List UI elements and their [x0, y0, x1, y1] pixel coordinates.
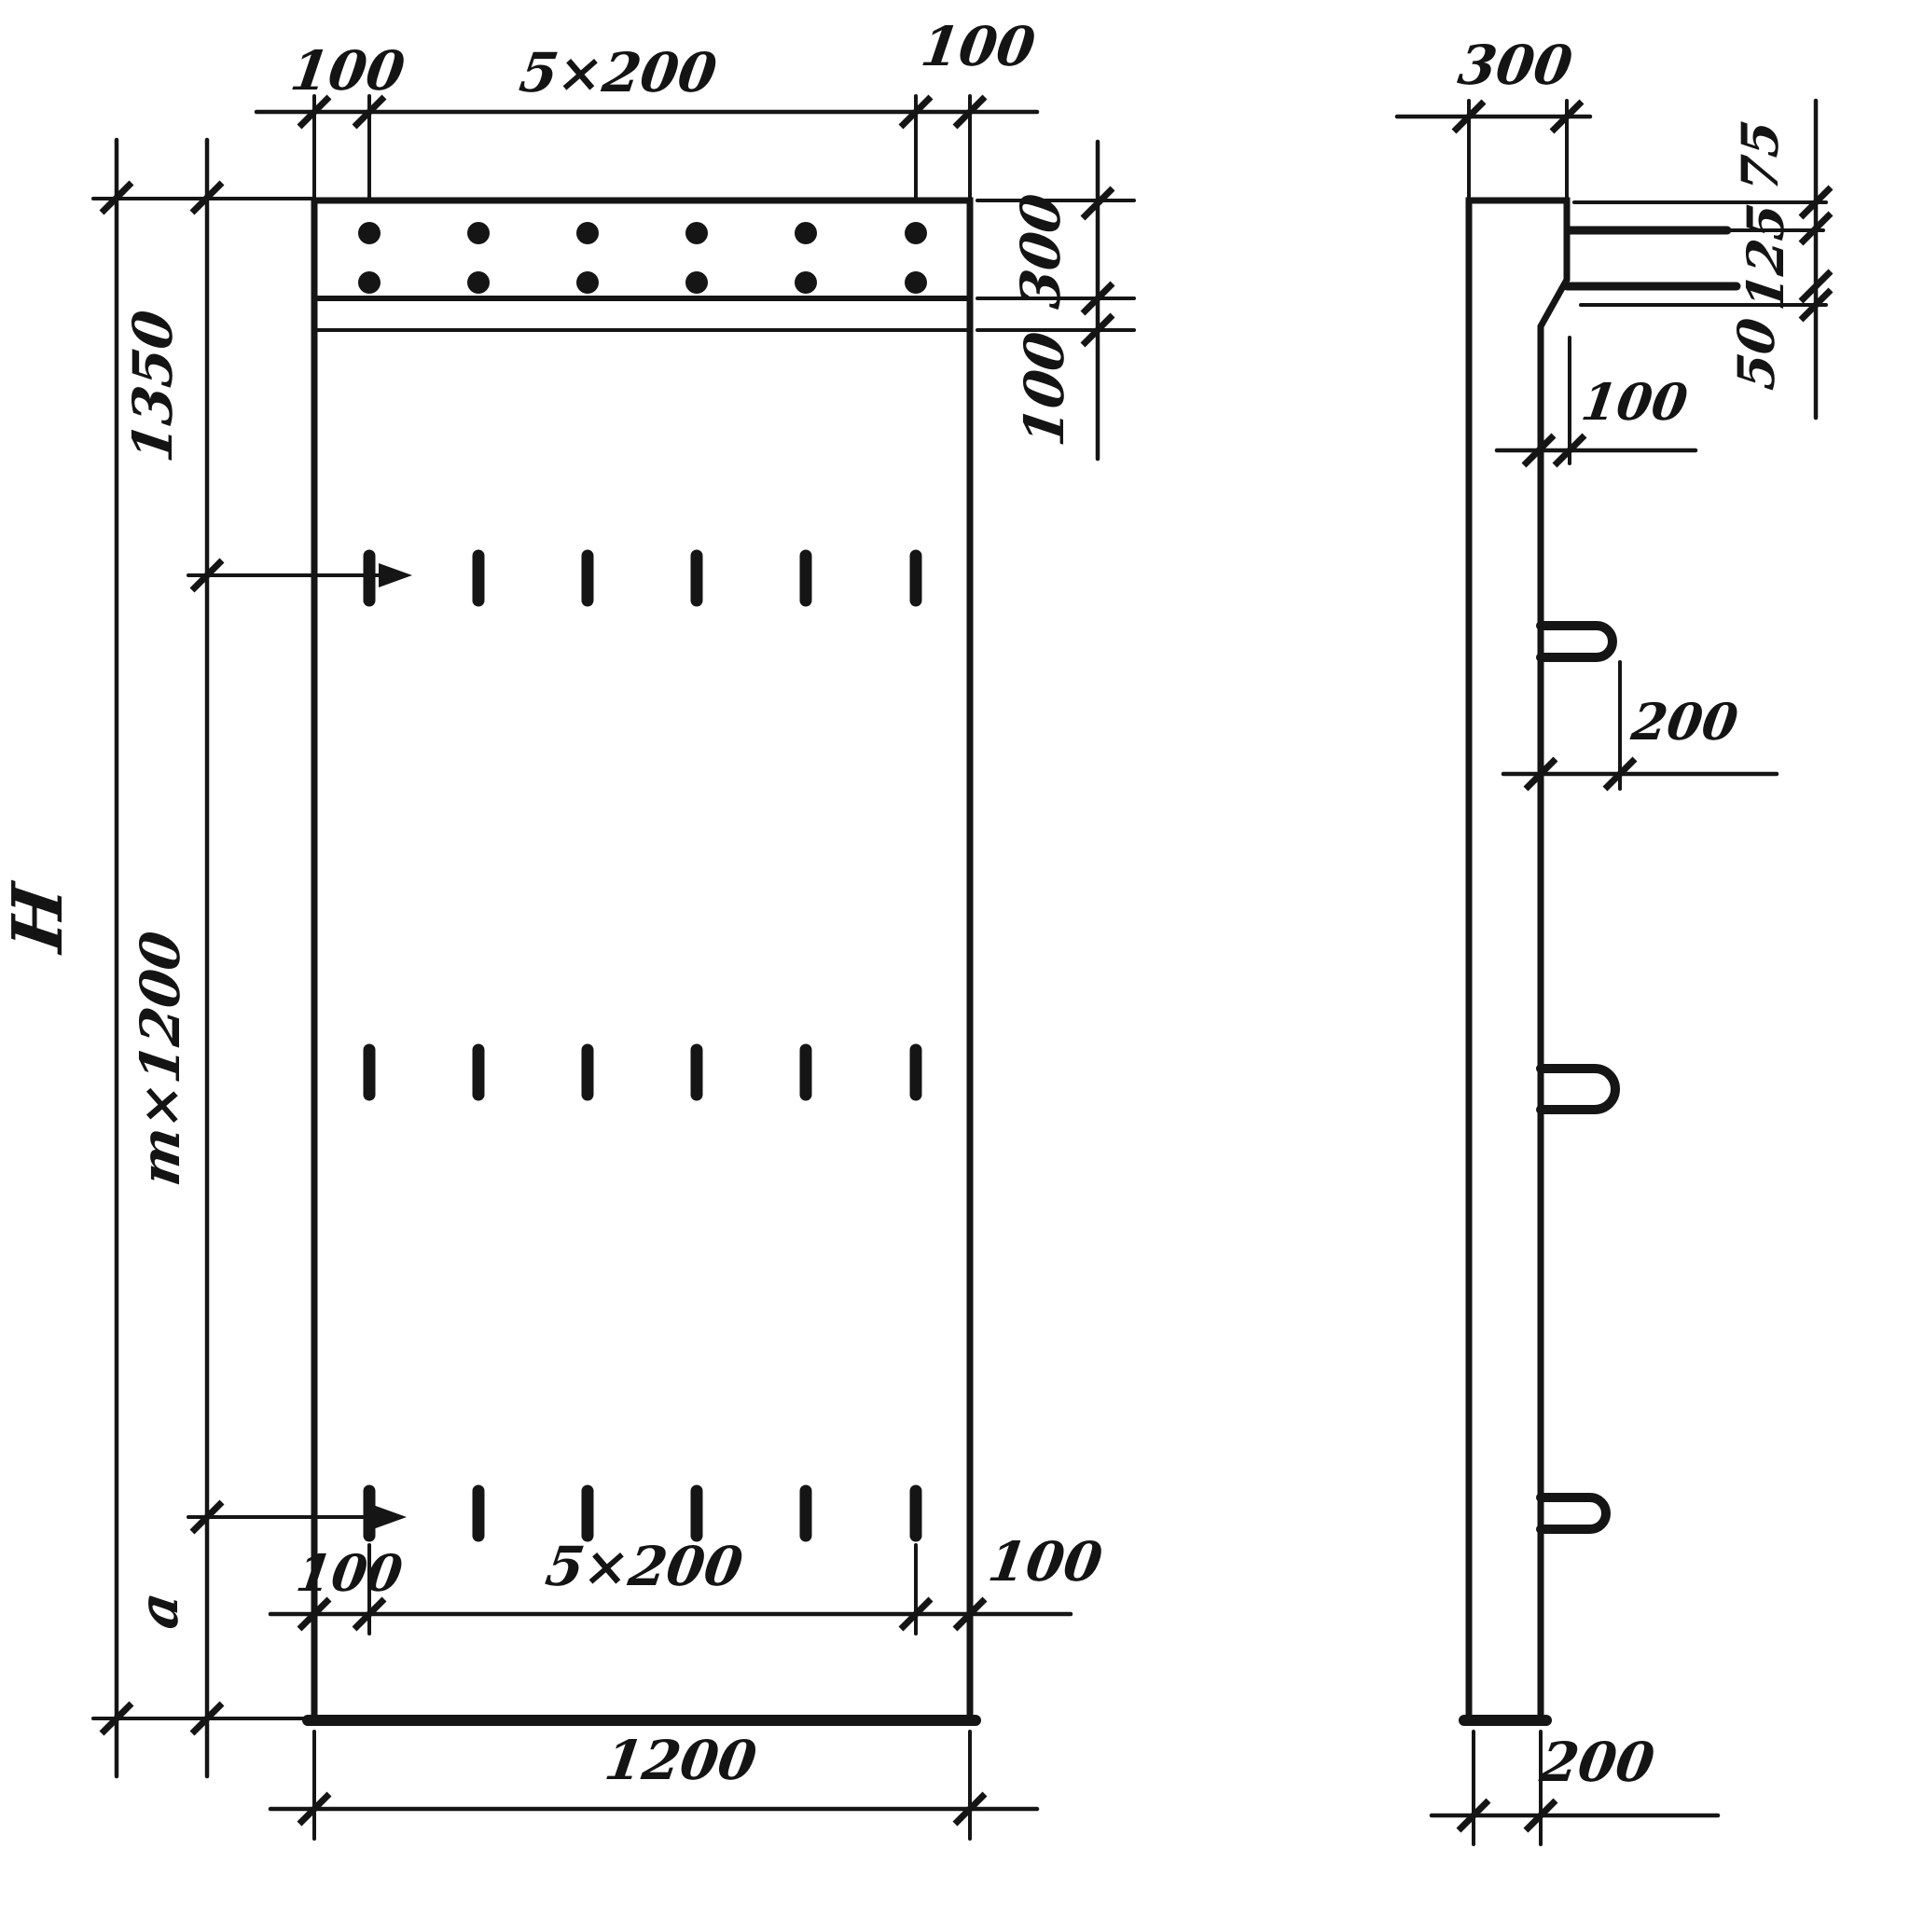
front-right-dimension: 300 100 [977, 142, 1134, 459]
dim-top-mid: 5×200 [516, 40, 721, 104]
front-top-dimension: 100 5×200 100 [256, 14, 1039, 198]
dim-125: 125 [1736, 200, 1795, 314]
side-bottom-dimension: 200 [1432, 1730, 1718, 1844]
dim-bottom-right: 100 [985, 1529, 1107, 1594]
dim-75: 75 [1730, 117, 1790, 195]
dim-band-100: 100 [1012, 328, 1076, 450]
dowel-dots [358, 222, 927, 294]
dim-bottom-left: 100 [293, 1543, 407, 1603]
dim-top-left: 100 [287, 38, 409, 103]
dim-loop-200: 200 [1627, 692, 1742, 752]
side-top-dimension: 300 [1397, 33, 1590, 198]
side-right-dimension: 75 125 50 [1726, 101, 1831, 418]
loop-dashes [369, 556, 916, 1536]
dim-side-300: 300 [1455, 33, 1577, 97]
dim-strip-300: 300 [1008, 190, 1073, 312]
dim-side-100: 100 [1578, 372, 1692, 432]
side-bend-dimension: 100 [1497, 338, 1695, 465]
dim-side-bottom-200: 200 [1536, 1730, 1659, 1794]
panel-outline [314, 200, 970, 1720]
dim-1350: 1350 [120, 307, 185, 466]
front-bottom-dimension: 100 5×200 100 1200 [270, 1529, 1106, 1839]
dim-bottom-mid: 5×200 [542, 1534, 747, 1598]
side-outline [1469, 200, 1567, 1720]
dim-50: 50 [1726, 314, 1786, 393]
side-view: 300 75 125 50 100 200 [1397, 33, 1831, 1844]
dim-H: H [0, 877, 78, 959]
dim-1200: 1200 [601, 1728, 760, 1792]
front-view: 100 5×200 100 300 100 1350 [0, 14, 1134, 1839]
technical-drawing-sheet: 100 5×200 100 300 100 1350 [0, 0, 1910, 1932]
side-loop-dimension: 200 [1503, 662, 1777, 789]
dim-a: a [126, 1589, 190, 1633]
drawing-canvas: 100 5×200 100 300 100 1350 [0, 0, 1910, 1932]
dim-top-right: 100 [918, 14, 1040, 78]
front-left-dimension: 1350 m×1200 H a [0, 140, 412, 1776]
dim-mx1200: m×1200 [128, 928, 192, 1190]
